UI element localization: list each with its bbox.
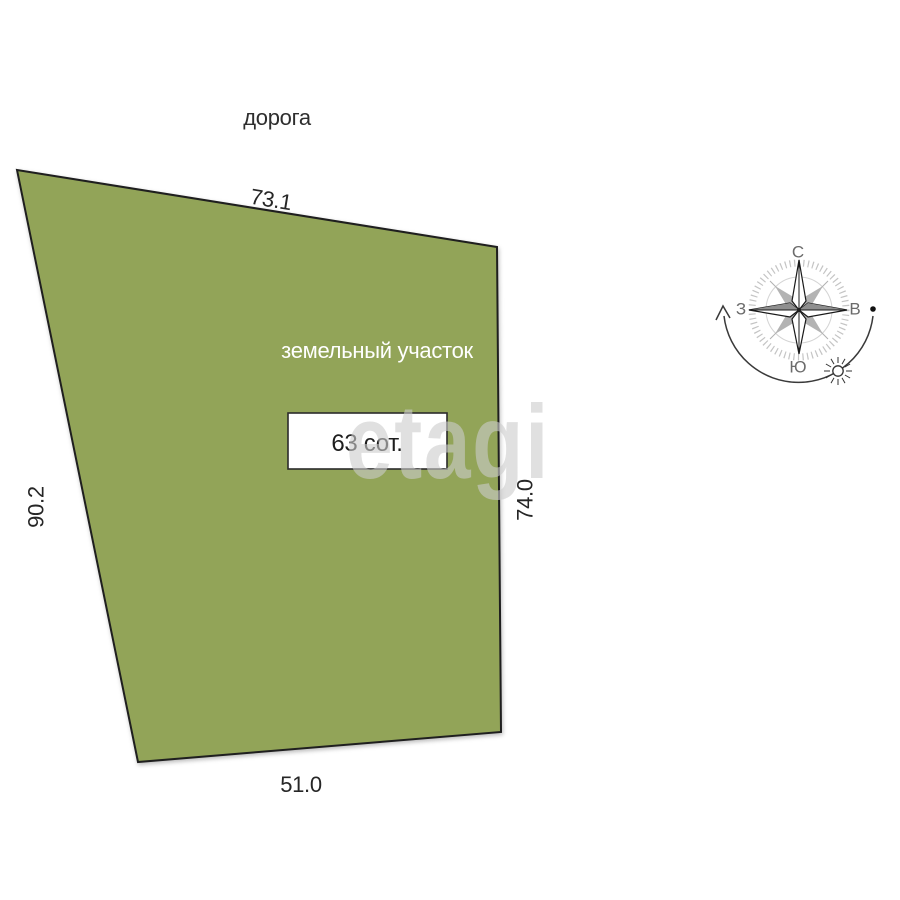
dimension-left: 90.2 [24,486,49,528]
dimension-bottom: 51.0 [280,772,322,797]
compass-label-south: Ю [789,358,806,377]
sun-icon [824,357,852,385]
sun-path-arrowhead [716,306,730,320]
road-label: дорога [243,105,312,130]
land-plot-plan: дорога 73.1 90.2 74.0 51.0 земельный уча… [0,0,900,900]
sun-path-start-dot [870,306,876,312]
land-plot: дорога 73.1 90.2 74.0 51.0 земельный уча… [17,105,550,797]
watermark-text: etagi [346,384,550,501]
compass-center-dot [797,308,801,312]
compass-rose: С В З Ю [716,243,876,386]
compass-label-east: В [849,300,860,319]
plot-name-label: земельный участок [281,338,473,363]
compass-label-west: З [736,300,746,319]
plan-drawing: дорога 73.1 90.2 74.0 51.0 земельный уча… [0,0,900,900]
compass-label-north: С [792,243,804,262]
